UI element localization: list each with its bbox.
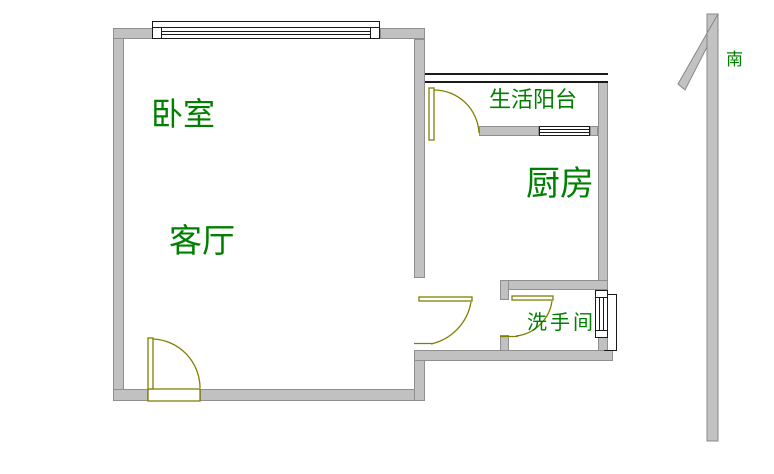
door-leaf	[512, 296, 553, 300]
door-leaf	[429, 88, 434, 140]
compass-label-south: 南	[726, 52, 743, 70]
compass-arrow-flag	[678, 14, 718, 90]
window-glass-line	[162, 31, 370, 32]
wall-balcony-divider-right	[590, 126, 598, 136]
room-label-bedroom: 卧室	[151, 98, 215, 132]
room-label-balcony: 生活阳台	[489, 89, 577, 112]
wall-bathroom-left-upper	[500, 280, 509, 300]
window-glass-line	[540, 132, 589, 133]
south-arrow-icon	[678, 14, 718, 441]
kitchen-door	[414, 297, 472, 344]
wall-right-upper	[598, 73, 608, 290]
wall-top-right	[380, 28, 425, 39]
door-threshold	[148, 389, 200, 401]
window-end-post	[370, 27, 380, 39]
room-label-kitchen: 厨房	[526, 167, 594, 203]
wall-bathroom-top	[500, 280, 608, 290]
window-glass-line	[599, 298, 600, 330]
window-glass-line	[162, 34, 370, 35]
room-label-bathroom: 洗手间	[527, 312, 596, 333]
window-end-post	[152, 27, 162, 39]
wall-bottom-right	[200, 389, 425, 401]
room-label-living-room: 客厅	[169, 224, 235, 259]
window-end-post	[596, 291, 607, 298]
balcony-door	[429, 88, 479, 140]
wall-spine-upper	[414, 39, 425, 278]
door-leaf	[148, 338, 153, 389]
window-glass-line	[603, 298, 604, 330]
balcony-railing	[425, 73, 608, 83]
wall-bottom-left	[113, 389, 148, 401]
wall-bathroom-bottom	[414, 350, 613, 361]
door-swing-arc	[431, 302, 471, 344]
wall-top-left	[113, 28, 155, 39]
wall-balcony-divider-mid	[479, 126, 539, 136]
door-swing-arc	[153, 339, 200, 388]
window-end-post	[596, 330, 607, 337]
entrance-door	[148, 338, 200, 401]
door-swing-arc	[434, 90, 479, 133]
balcony-kitchen-window	[539, 126, 590, 136]
door-leaf	[419, 297, 472, 301]
compass-arrow-shaft	[707, 14, 718, 441]
bedroom-window	[152, 27, 380, 39]
wall-left	[113, 28, 124, 401]
window-glass-line	[540, 129, 589, 130]
floor-plan-canvas: 卧室 客厅 生活阳台 厨房 洗手间 南	[0, 0, 774, 474]
bathroom-window	[595, 290, 608, 338]
